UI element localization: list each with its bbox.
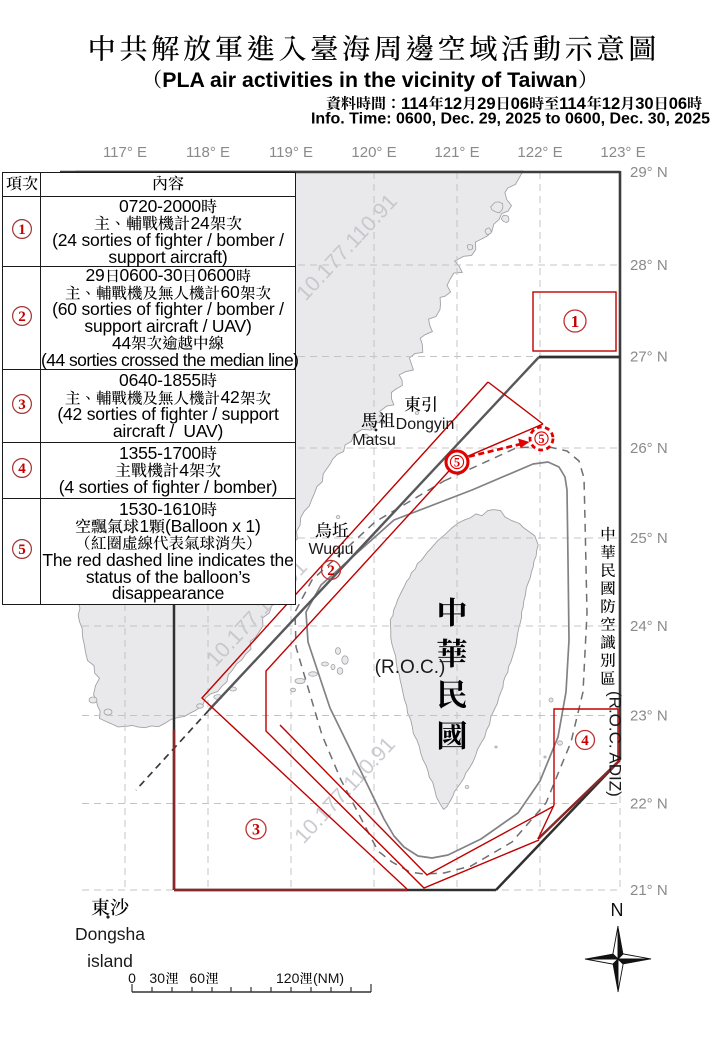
svg-text:Dongsha: Dongsha	[75, 924, 145, 944]
svg-text:(NM): (NM)	[313, 970, 344, 986]
svg-text:PLA air activities in the vici: PLA air activities in the vicinity of Ta…	[162, 68, 577, 92]
svg-text:117° E: 117° E	[103, 144, 147, 161]
svg-text:5: 5	[538, 432, 544, 446]
svg-text:Wuqiu: Wuqiu	[308, 541, 353, 558]
svg-text:22° N: 22° N	[630, 796, 668, 813]
svg-text:0: 0	[128, 970, 136, 986]
svg-text:119° E: 119° E	[269, 144, 313, 161]
svg-text:23° N: 23° N	[630, 708, 668, 725]
svg-text:121° E: 121° E	[434, 144, 479, 161]
svg-text:N: N	[611, 900, 624, 920]
svg-text:120: 120	[276, 970, 300, 986]
svg-text:29° N: 29° N	[630, 164, 668, 181]
svg-text:123° E: 123° E	[600, 144, 645, 161]
svg-text:5: 5	[454, 456, 460, 470]
svg-text:25° N: 25° N	[630, 530, 668, 547]
svg-text:1: 1	[18, 222, 26, 238]
svg-text:28° N: 28° N	[630, 257, 668, 274]
svg-text:4: 4	[18, 461, 26, 477]
svg-text:(R.O.C.): (R.O.C.)	[375, 657, 446, 678]
svg-text:24° N: 24° N	[630, 618, 668, 635]
svg-text:122° E: 122° E	[517, 144, 562, 161]
svg-text:1: 1	[571, 312, 580, 331]
svg-text:120° E: 120° E	[351, 144, 396, 161]
svg-text:21° N: 21° N	[630, 882, 668, 899]
svg-text:5: 5	[18, 542, 26, 558]
svg-text:118° E: 118° E	[186, 144, 230, 161]
svg-text:island: island	[87, 951, 133, 971]
svg-text:Matsu: Matsu	[352, 432, 396, 449]
svg-text:(R.O.C. ADIZ): (R.O.C. ADIZ)	[606, 691, 625, 797]
svg-text:27° N: 27° N	[630, 349, 668, 366]
svg-text:60: 60	[189, 970, 205, 986]
svg-text:4: 4	[581, 733, 589, 749]
svg-text:Dongyin: Dongyin	[396, 416, 455, 433]
svg-text:3: 3	[18, 397, 26, 413]
svg-text:3: 3	[252, 821, 260, 838]
svg-text:Info. Time: 0600, Dec. 29, 202: Info. Time: 0600, Dec. 29, 2025 to 0600,…	[311, 111, 710, 128]
svg-text:2: 2	[327, 563, 335, 579]
svg-text:2: 2	[18, 309, 26, 325]
svg-text:26° N: 26° N	[630, 440, 668, 457]
svg-text:30: 30	[149, 970, 165, 986]
